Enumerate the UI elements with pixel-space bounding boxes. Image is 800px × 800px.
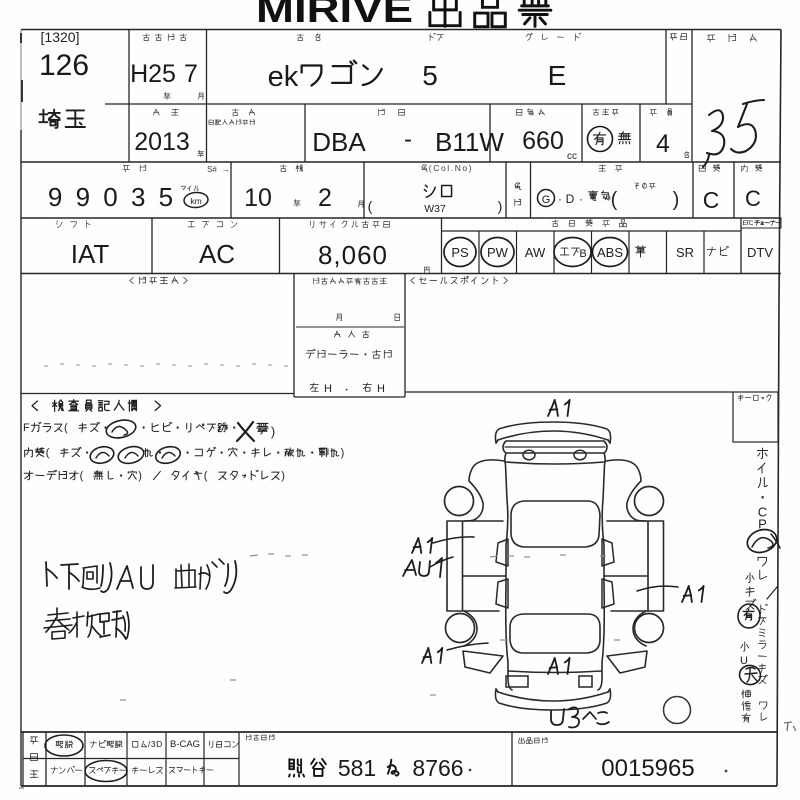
svg-text:B11W: B11W — [435, 127, 504, 157]
svg-text:B: B — [579, 248, 586, 260]
svg-text:7: 7 — [184, 60, 198, 88]
svg-text:2: 2 — [318, 184, 332, 212]
svg-text:(: ( — [368, 198, 373, 214]
svg-text:SR: SR — [676, 245, 694, 260]
svg-text:5: 5 — [422, 60, 438, 91]
svg-text:C: C — [745, 186, 761, 211]
svg-text:-: - — [404, 126, 412, 153]
svg-text:H: H — [377, 383, 385, 395]
svg-text:→: → — [222, 165, 230, 174]
svg-text:10: 10 — [244, 184, 272, 212]
svg-text:8,060: 8,060 — [318, 240, 388, 270]
svg-text:(: ( — [46, 447, 50, 459]
svg-text:W37: W37 — [424, 203, 446, 215]
svg-text:126: 126 — [39, 49, 89, 82]
svg-text:ETC: ETC — [743, 220, 754, 227]
svg-text:): ) — [281, 470, 285, 482]
svg-text:DTV: DTV — [747, 245, 773, 260]
svg-text:(Col.No): (Col.No) — [429, 163, 472, 173]
svg-text:C: C — [703, 187, 720, 213]
svg-text:8766: 8766 — [412, 755, 463, 781]
svg-text:): ) — [498, 198, 503, 214]
svg-text:660: 660 — [522, 127, 564, 155]
svg-text:D: D — [566, 192, 575, 206]
svg-text:4: 4 — [656, 130, 670, 158]
svg-text:PS: PS — [451, 245, 469, 260]
svg-text:E: E — [548, 60, 567, 91]
svg-text:G: G — [542, 194, 551, 206]
svg-text:B-CAG: B-CAG — [170, 739, 200, 750]
svg-text:581: 581 — [338, 755, 376, 781]
svg-text:MIRIVE: MIRIVE — [256, 0, 413, 30]
svg-text:km: km — [190, 196, 201, 206]
svg-text:[1320]: [1320] — [41, 29, 80, 45]
svg-text:cc: cc — [567, 151, 577, 162]
svg-text:0015965: 0015965 — [601, 755, 694, 782]
svg-text:AC: AC — [199, 239, 235, 269]
svg-text:): ) — [673, 189, 680, 211]
svg-text:ABS: ABS — [597, 245, 623, 260]
svg-text:): ) — [271, 424, 275, 439]
svg-text:F: F — [23, 422, 30, 434]
svg-text:/3D: /3D — [148, 739, 162, 749]
svg-text:·: · — [579, 192, 583, 206]
svg-text:S#: S# — [207, 165, 217, 174]
svg-text:(: ( — [64, 422, 68, 434]
svg-text:IAT: IAT — [71, 239, 110, 269]
svg-text:2013: 2013 — [134, 128, 190, 156]
svg-text:·: · — [558, 192, 562, 206]
svg-text:): ) — [341, 447, 345, 459]
svg-text:DBA: DBA — [312, 127, 366, 157]
svg-text:ek: ek — [268, 61, 299, 93]
svg-text:): ) — [138, 470, 142, 482]
svg-text:9 9 0 3 5: 9 9 0 3 5 — [48, 182, 176, 212]
svg-text:H25: H25 — [130, 60, 176, 88]
svg-text:PW: PW — [487, 245, 509, 260]
svg-text:AW: AW — [525, 245, 546, 260]
svg-text:H: H — [324, 383, 332, 395]
svg-text:(: ( — [80, 470, 84, 482]
svg-text:(: ( — [611, 189, 618, 211]
svg-text:(: ( — [204, 470, 208, 482]
